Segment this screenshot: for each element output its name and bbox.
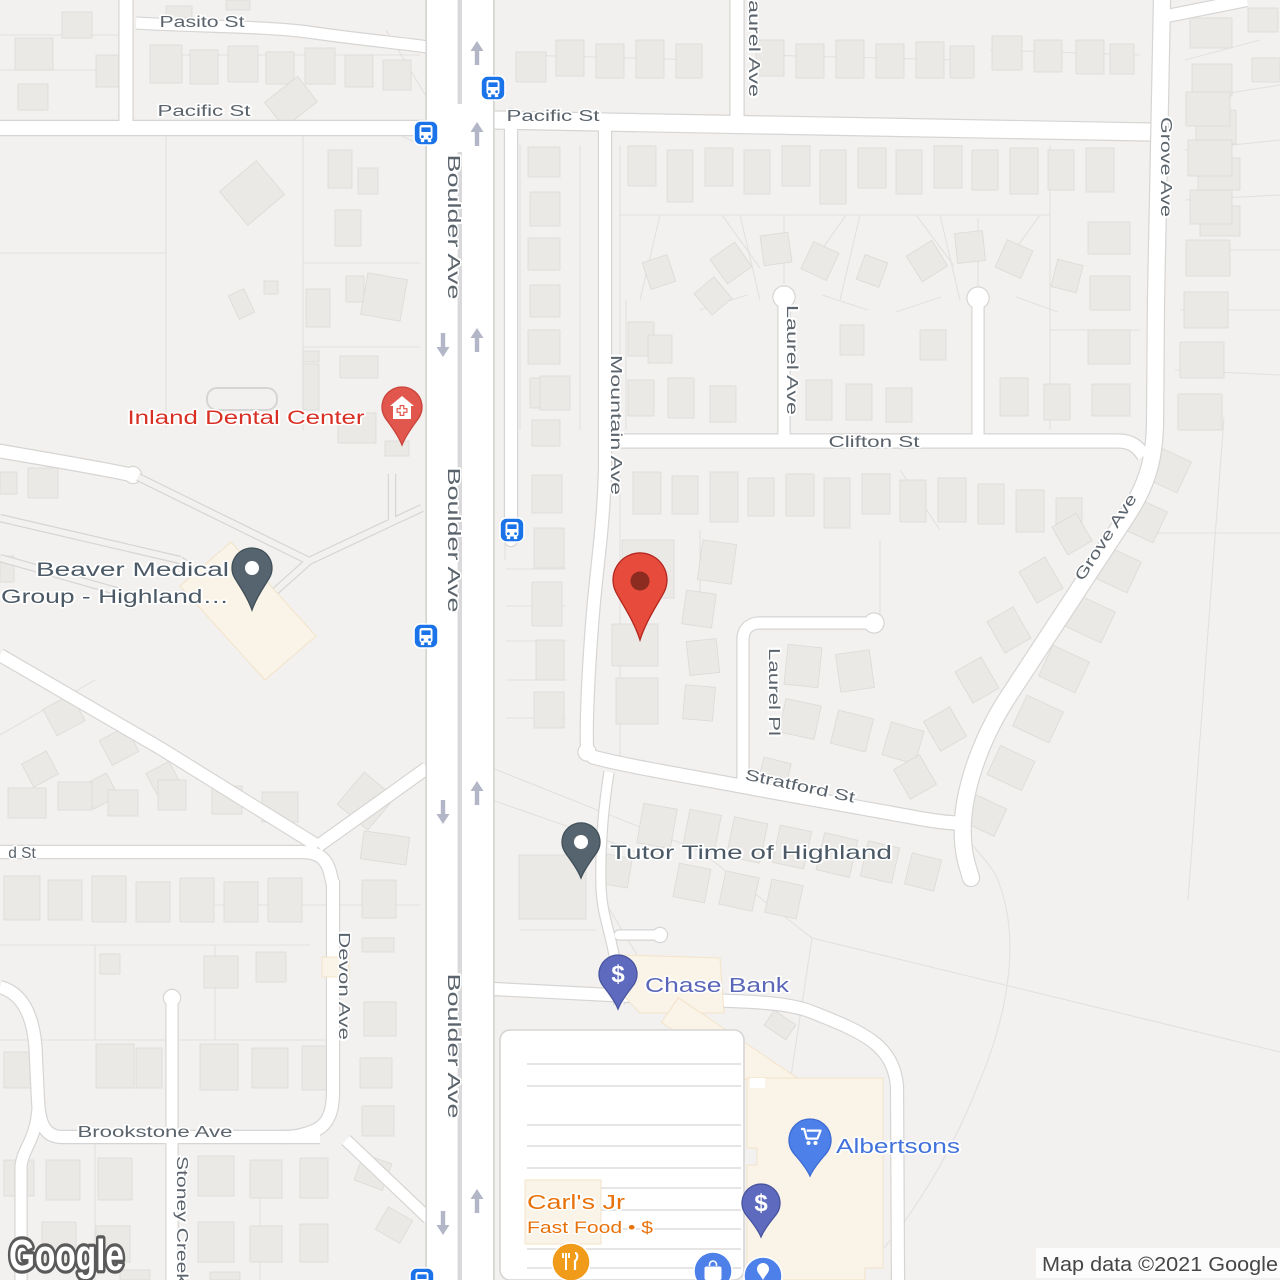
- svg-text:Laurel Ave: Laurel Ave: [745, 0, 762, 97]
- svg-text:Laurel Ave: Laurel Ave: [783, 305, 800, 415]
- svg-text:Pacific St: Pacific St: [158, 103, 252, 120]
- svg-text:Clifton St: Clifton St: [829, 434, 921, 451]
- svg-text:Boulder Ave: Boulder Ave: [444, 974, 464, 1119]
- svg-text:Boulder Ave: Boulder Ave: [444, 155, 464, 300]
- svg-text:Mountain Ave: Mountain Ave: [607, 355, 624, 495]
- svg-text:$: $: [611, 961, 625, 988]
- svg-text:Pasito St: Pasito St: [160, 14, 246, 31]
- svg-text:Group - Highland…: Group - Highland…: [1, 587, 229, 608]
- svg-text:Brookstone Ave: Brookstone Ave: [78, 1124, 233, 1141]
- svg-text:Pacific St: Pacific St: [507, 108, 601, 125]
- svg-text:Boulder Ave: Boulder Ave: [444, 468, 464, 613]
- svg-text:Carl's Jr: Carl's Jr: [527, 1192, 625, 1214]
- svg-text:Devon Ave: Devon Ave: [335, 932, 352, 1040]
- svg-text:Fast Food • $: Fast Food • $: [527, 1218, 654, 1237]
- svg-text:Google: Google: [9, 1231, 124, 1280]
- svg-text:d St: d St: [8, 845, 36, 862]
- svg-text:Chase Bank: Chase Bank: [645, 975, 790, 997]
- svg-text:Inland Dental Center: Inland Dental Center: [128, 408, 366, 429]
- svg-text:Beaver Medical: Beaver Medical: [36, 560, 229, 581]
- svg-text:Grove Ave: Grove Ave: [1157, 117, 1174, 217]
- svg-text:$: $: [754, 1190, 768, 1217]
- svg-text:Albertsons: Albertsons: [836, 1136, 960, 1158]
- svg-text:Tutor Time of Highland: Tutor Time of Highland: [610, 842, 892, 864]
- svg-text:Map data ©2021 Google: Map data ©2021 Google: [1042, 1254, 1278, 1276]
- svg-text:Stoney Creek: Stoney Creek: [173, 1156, 190, 1280]
- svg-text:Laurel Pl: Laurel Pl: [765, 648, 782, 736]
